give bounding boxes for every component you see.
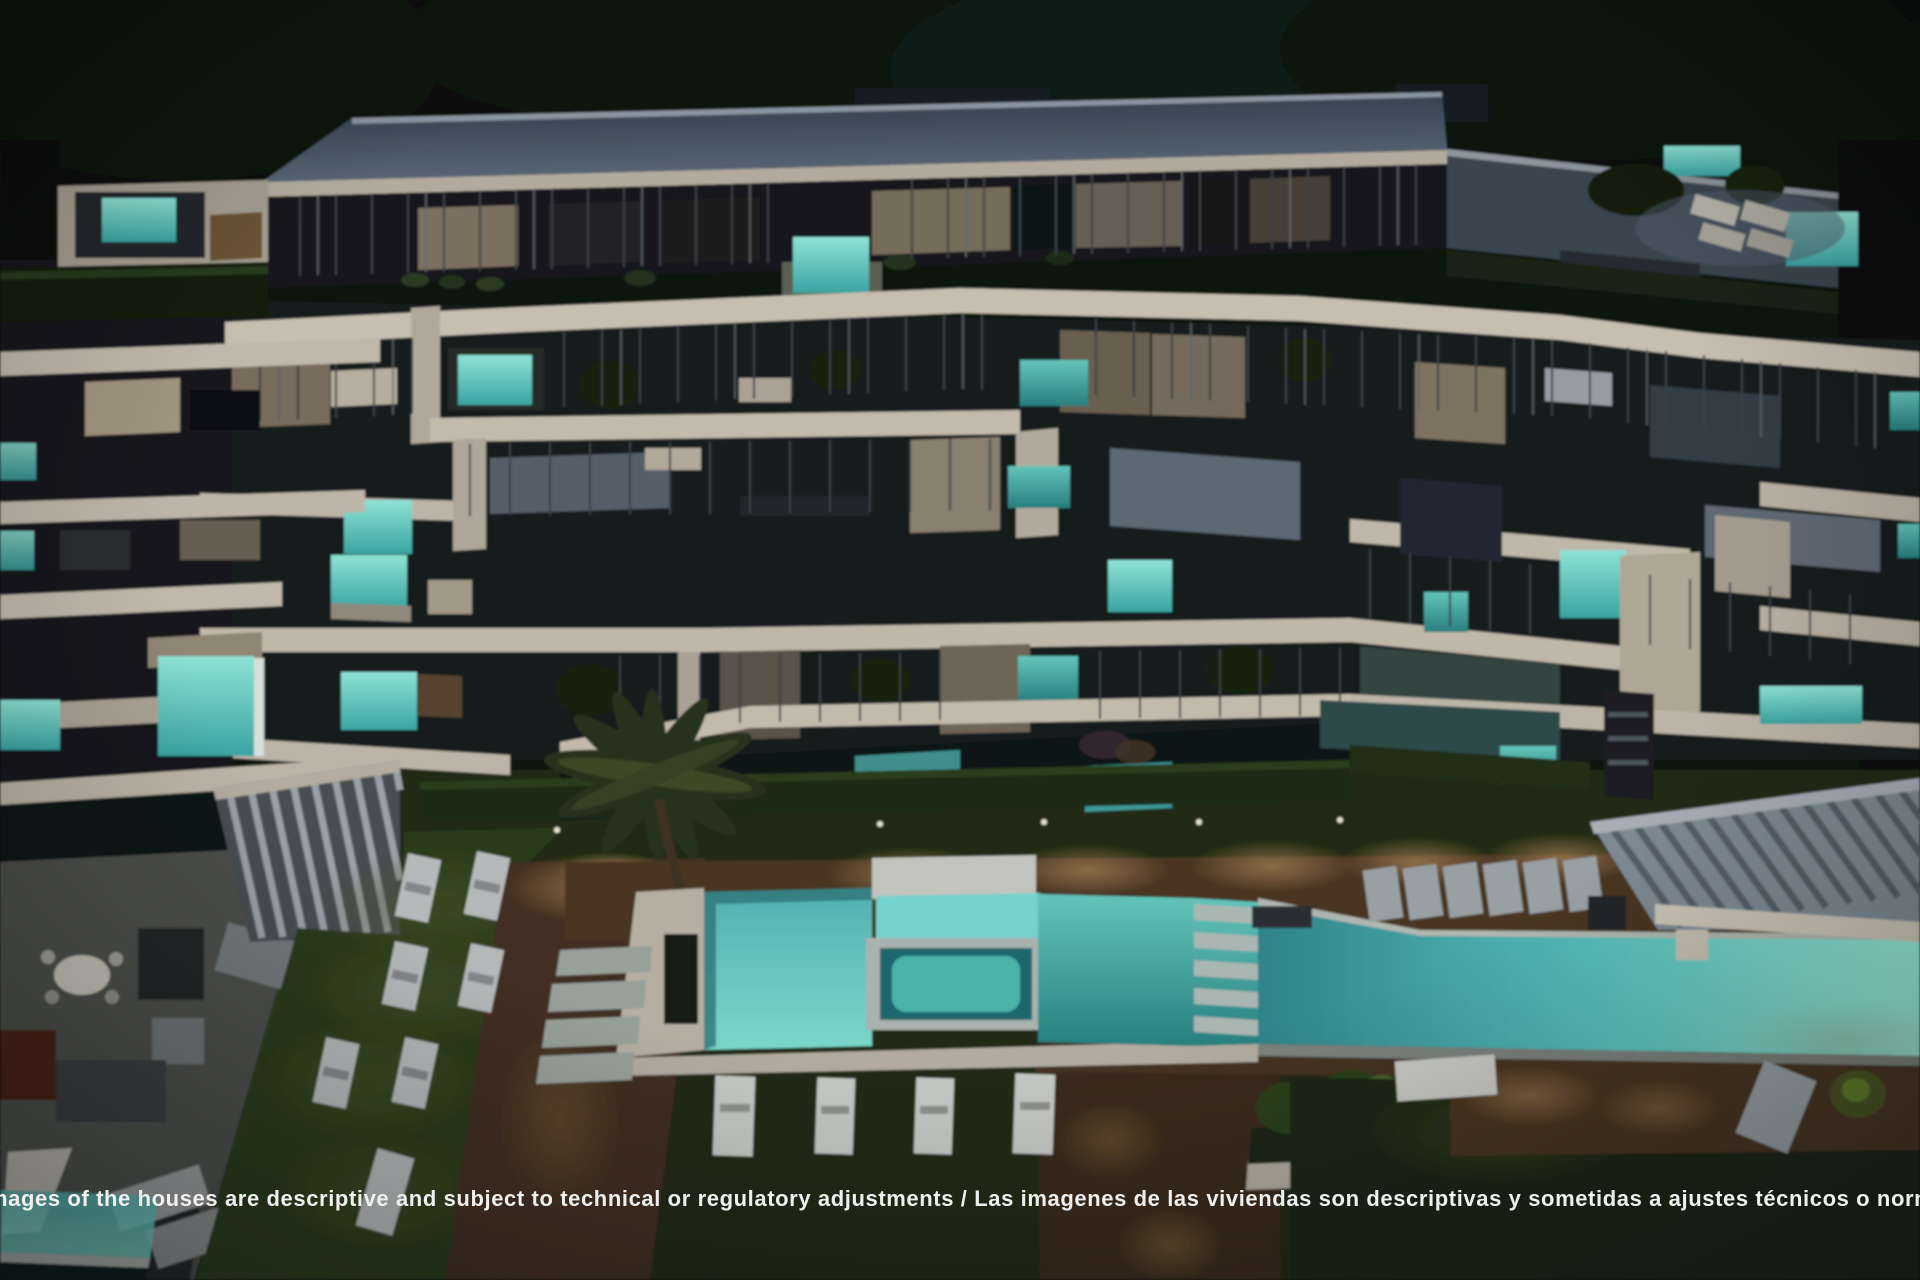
svg-text:mages of the houses are descri: mages of the houses are descriptive and … <box>0 1186 1920 1211</box>
